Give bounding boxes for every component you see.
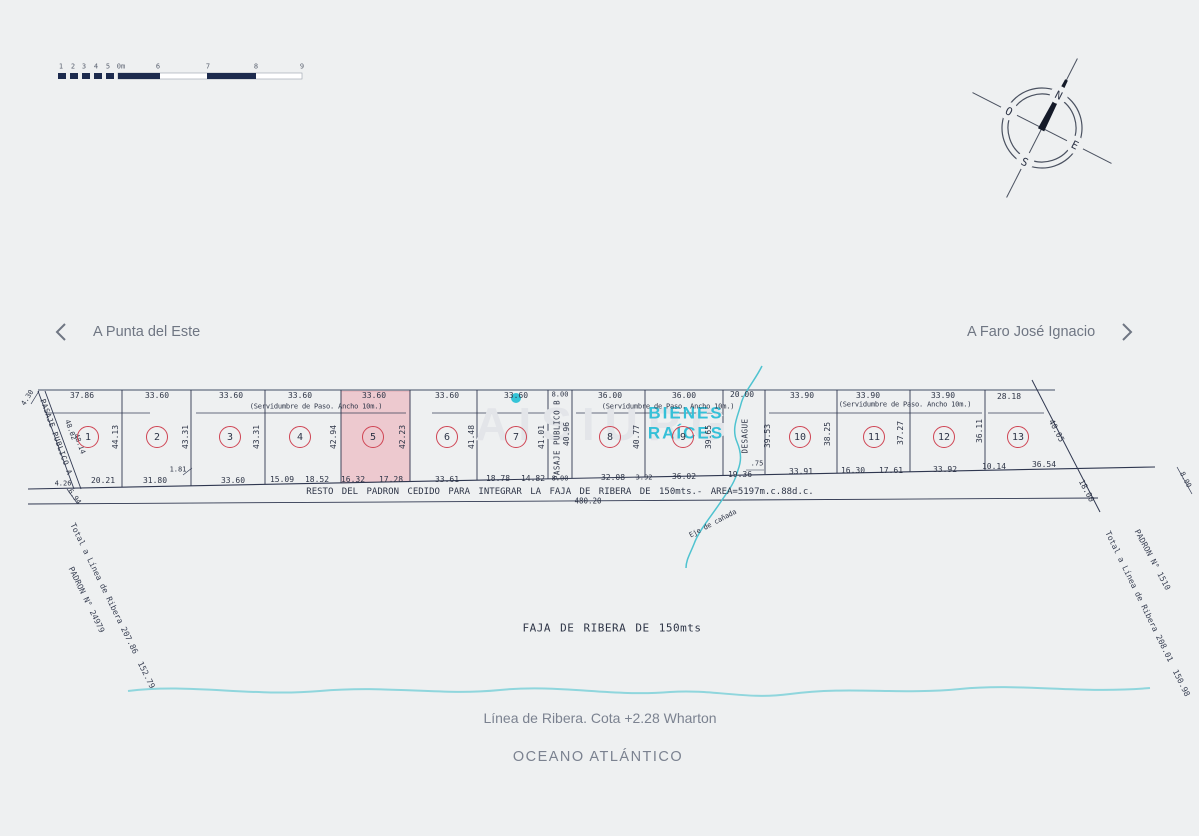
lot-13-marker: 13 [1007, 426, 1029, 448]
dim-side: 40.77 [633, 425, 641, 449]
lot-10-marker: 10 [789, 426, 811, 448]
oceano-atlantico-label: OCEANO ATLÁNTICO [513, 749, 683, 765]
compass-rose: N S E O [937, 23, 1147, 233]
dim-side: 42.23 [399, 425, 407, 449]
scale-bar [58, 73, 302, 79]
dim-top: 33.90 [931, 392, 955, 400]
scale-num: 2 [71, 64, 75, 71]
resto-total-dim: 480.20 [574, 497, 601, 506]
scale-num: 5 [106, 64, 110, 71]
nav-faro-jose-ignacio[interactable]: A Faro José Ignacio [967, 322, 1133, 342]
site-plan-canvas: N S E O [0, 0, 1199, 836]
dim-side: 43.31 [253, 425, 261, 449]
scale-num: 9 [300, 64, 304, 71]
dim-bottom: 16.30 [841, 467, 865, 475]
scale-num: 6 [156, 64, 160, 71]
dim-side: 39.65 [705, 425, 713, 449]
chevron-right-icon [1121, 322, 1133, 342]
lot-11-marker: 11 [863, 426, 885, 448]
dim-side: 37.27 [897, 421, 905, 445]
dim-bottom: 18.52 [305, 476, 329, 484]
dim-bottom: 20.21 [91, 477, 115, 485]
dim-bottom: 10.14 [982, 463, 1006, 471]
nav-punta-del-este[interactable]: A Punta del Este [55, 322, 200, 342]
dim-bottom: 31.80 [143, 477, 167, 485]
dim-bottom: 1.81 [170, 467, 187, 474]
dim-top: 20.00 [730, 391, 754, 399]
nav-right-label: A Faro José Ignacio [967, 324, 1095, 340]
dim-bottom: 4.26 [55, 481, 72, 488]
scale-num: 0m [117, 64, 125, 71]
dim-top: 28.18 [997, 393, 1021, 401]
lot-1-marker: 1 [77, 426, 99, 448]
dim-top: 8.00 [552, 392, 569, 399]
servidumbre-label: (Servidumbre de Paso. Ancho 10m.) [250, 404, 382, 411]
servidumbre-label: (Servidumbre de Paso. Ancho 10m.) [839, 402, 971, 409]
dim-side: 40.96 [563, 422, 571, 446]
compass-needle [1038, 78, 1070, 131]
dim-bottom: 15.09 [270, 476, 294, 484]
dim-bottom: 17.61 [879, 467, 903, 475]
dim-top: 33.90 [790, 392, 814, 400]
dim-bottom: 14.82 [521, 475, 545, 483]
dim-top: 33.60 [504, 392, 528, 400]
dim-bottom: 33.92 [933, 466, 957, 474]
servidumbre-label: (Servidumbre de Paso. Ancho 10m.) [602, 404, 734, 411]
dim-top: 33.60 [219, 392, 243, 400]
linea-ribera-label: Línea de Ribera. Cota +2.28 Wharton [483, 710, 716, 726]
scale-num: 7 [206, 64, 210, 71]
band-bottom-line [28, 498, 1098, 504]
lot-2-marker: 2 [146, 426, 168, 448]
lot-12-marker: 12 [933, 426, 955, 448]
dim-bottom: 3.92 [636, 475, 653, 482]
dim-side: 39.53 [764, 424, 772, 448]
dim-top: 36.00 [598, 392, 622, 400]
desague-label: DESAGUE [741, 418, 749, 453]
lot-7-marker: 7 [505, 426, 527, 448]
scale-num: 4 [94, 64, 98, 71]
lot-5-marker: 5 [362, 426, 384, 448]
nav-left-label: A Punta del Este [93, 324, 200, 340]
dim-bottom: 18.78 [486, 475, 510, 483]
dim-side: 43.31 [182, 425, 190, 449]
lot-9-marker: 9 [672, 426, 694, 448]
dim-top: 33.60 [288, 392, 312, 400]
dim-bottom: .75 [751, 461, 764, 468]
dim-side: 44.13 [112, 425, 120, 449]
dim-side: 42.94 [330, 425, 338, 449]
lot-8-marker: 8 [599, 426, 621, 448]
dim-top: 33.90 [856, 392, 880, 400]
scale-num: 3 [82, 64, 86, 71]
dim-bottom: 32.08 [601, 474, 625, 482]
dim-bottom: 36.02 [672, 473, 696, 481]
dim-top: 33.60 [145, 392, 169, 400]
dim-bottom: 19.36 [728, 471, 752, 479]
dim-top: 33.60 [435, 392, 459, 400]
dim-bottom: 8.00 [552, 476, 569, 483]
dim-side: 41.01 [538, 425, 546, 449]
scale-num: 8 [254, 64, 258, 71]
pasaje-publico-b-label: PASAJE PUBLICO B [553, 400, 561, 480]
dim-side: 41.48 [468, 425, 476, 449]
dim-bottom: 17.28 [379, 476, 403, 484]
lot-3-marker: 3 [219, 426, 241, 448]
dim-bottom: 33.60 [221, 477, 245, 485]
lot-6-marker: 6 [436, 426, 458, 448]
dim-bottom: 36.54 [1032, 461, 1056, 469]
dim-bottom: 33.91 [789, 468, 813, 476]
dim-top: 36.00 [672, 392, 696, 400]
faja-ribera-label: FAJA DE RIBERA DE 150mts [523, 623, 702, 634]
chevron-left-icon [55, 322, 67, 342]
dim-top: 37.86 [70, 392, 94, 400]
shoreline-wave [128, 687, 1150, 696]
scale-num: 1 [59, 64, 63, 71]
dim-top: 33.60 [362, 392, 386, 400]
dim-bottom: 16.32 [341, 476, 365, 484]
dim-side: 36.11 [976, 419, 984, 443]
lot-4-marker: 4 [289, 426, 311, 448]
resto-padron-text: RESTO DEL PADRON CEDIDO PARA INTEGRAR LA… [306, 487, 813, 497]
dim-side: 38.25 [824, 422, 832, 446]
dim-bottom: 33.61 [435, 476, 459, 484]
